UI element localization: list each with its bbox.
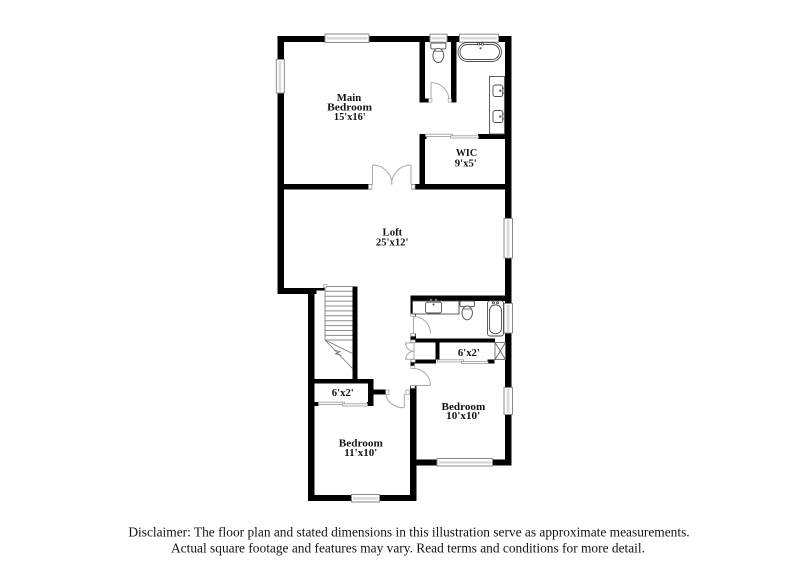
svg-text:9'x5': 9'x5' (455, 158, 477, 170)
svg-text:Actual square footage and feat: Actual square footage and features may v… (171, 540, 645, 555)
svg-text:Disclaimer: The floor plan and: Disclaimer: The floor plan and stated di… (128, 525, 689, 540)
svg-text:6'x2': 6'x2' (458, 347, 480, 359)
svg-text:6'x2': 6'x2' (332, 387, 354, 399)
svg-text:25'x12': 25'x12' (376, 237, 409, 249)
svg-text:11'x10': 11'x10' (344, 447, 377, 459)
svg-text:10'x10': 10'x10' (446, 410, 480, 422)
svg-text:15'x16': 15'x16' (334, 111, 366, 123)
